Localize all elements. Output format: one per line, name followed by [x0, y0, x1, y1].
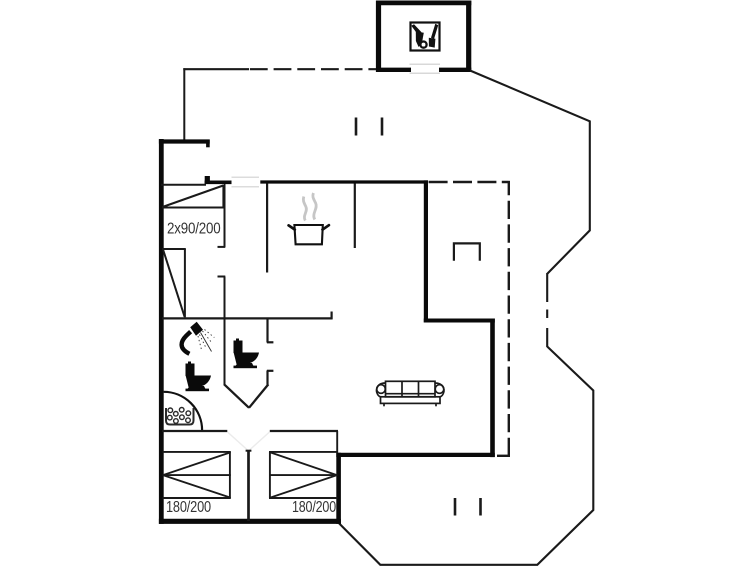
svg-text:180/200: 180/200	[292, 499, 336, 516]
svg-text:2x90/200: 2x90/200	[167, 221, 221, 238]
svg-text:180/200: 180/200	[166, 499, 211, 516]
